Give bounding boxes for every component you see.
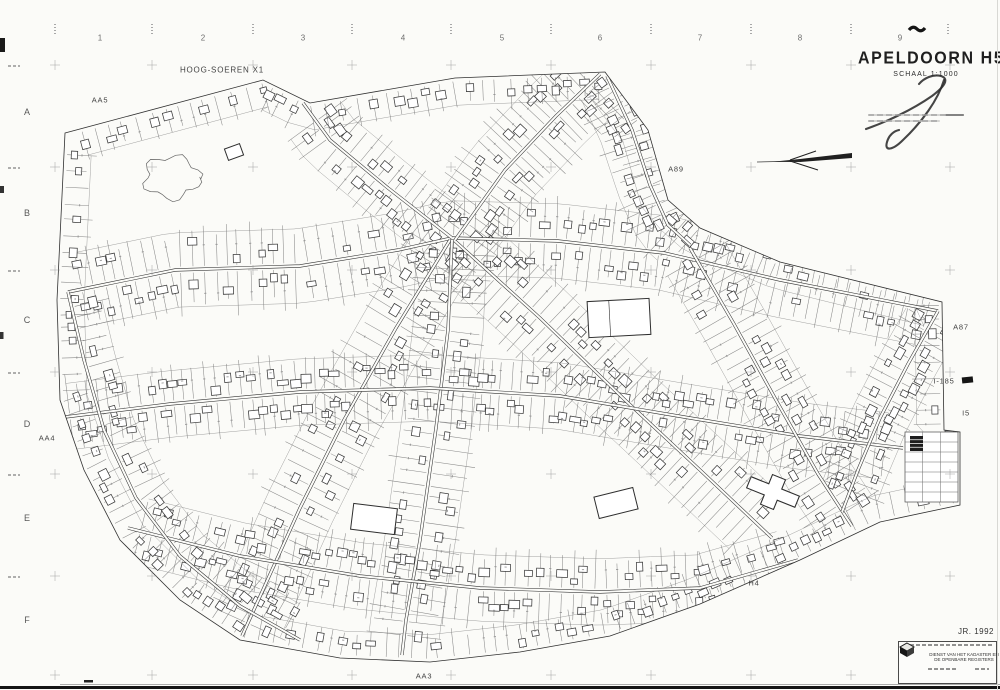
grid-column-label-1: 1 bbox=[98, 34, 102, 43]
grid-row-label-C: C bbox=[24, 315, 31, 325]
grid-row-label-A: A bbox=[24, 107, 30, 117]
stamp-org-line2: DE OPENBARE REGISTERS bbox=[929, 657, 998, 662]
grid-coordinate-tick-top-3 bbox=[351, 24, 353, 35]
grid-row-label-E: E bbox=[24, 513, 30, 523]
grid-coordinate-tick-left-3 bbox=[8, 372, 20, 374]
scan-speck bbox=[0, 186, 4, 193]
grid-column-label-5: 5 bbox=[500, 34, 504, 43]
scan-speck bbox=[84, 680, 93, 683]
ink-blob bbox=[962, 376, 974, 383]
grid-row-label-B: B bbox=[24, 208, 30, 218]
stamp-fineprint-top bbox=[904, 644, 992, 646]
grid-column-label-2: 2 bbox=[201, 34, 205, 43]
grid-column-label-8: 8 bbox=[798, 34, 802, 43]
handwritten-arrow bbox=[770, 153, 852, 162]
sheet-title: APELDOORN H5 bbox=[858, 49, 994, 68]
scan-edge-line bbox=[0, 686, 1000, 689]
section-label-h4: H4 bbox=[748, 579, 759, 588]
stamp-fineprint-left bbox=[928, 668, 958, 670]
section-label-aa4: AA4 bbox=[39, 434, 56, 443]
grid-column-label-3: 3 bbox=[301, 34, 305, 43]
section-label-i5: I5 bbox=[962, 409, 970, 418]
grid-row-label-D: D bbox=[24, 419, 31, 429]
grid-coordinate-tick-top-4 bbox=[450, 24, 452, 35]
grid-coordinate-tick-top-1 bbox=[151, 24, 153, 35]
grid-column-label-4: 4 bbox=[401, 34, 405, 43]
overlays bbox=[0, 27, 973, 682]
title-block: APELDOORN H5 SCHAAL 1:1000 bbox=[858, 50, 994, 78]
grid-coordinate-tick-left-4 bbox=[8, 474, 20, 476]
grid-coordinate-tick-left-5 bbox=[8, 576, 20, 578]
section-label-a89: A89 bbox=[668, 165, 684, 174]
grid-coordinate-tick-top-0 bbox=[54, 24, 56, 35]
grid-column-label-9: 9 bbox=[898, 34, 902, 43]
section-label-a87: A87 bbox=[953, 323, 969, 332]
grid-coordinate-tick-top-9 bbox=[947, 24, 949, 35]
grid-column-label-6: 6 bbox=[598, 34, 602, 43]
stamp-fineprint-right bbox=[975, 668, 989, 670]
handwritten-mark bbox=[909, 27, 925, 31]
grid-coordinate-tick-top-2 bbox=[252, 24, 254, 35]
section-label-i185: I-185 bbox=[933, 377, 954, 386]
sheet-scale-label: SCHAAL 1:1000 bbox=[858, 71, 994, 78]
grid-column-label-7: 7 bbox=[698, 34, 702, 43]
sheet-right-edge bbox=[997, 0, 998, 690]
kadaster-stamp-box: DIENST VAN HET KADASTER EN DE OPENBARE R… bbox=[898, 641, 997, 684]
grid-coordinate-tick-top-5 bbox=[550, 24, 552, 35]
grid-coordinate-tick-top-6 bbox=[650, 24, 652, 35]
scan-speck bbox=[0, 38, 5, 52]
cadastral-map-sheet: 123456789ABCDEFHOOG-SOEREN X1AA5A89A87I-… bbox=[0, 0, 1000, 690]
kadaster-cube-logo-icon bbox=[899, 642, 915, 658]
grid-coordinate-tick-top-7 bbox=[750, 24, 752, 35]
sheet-bottom-edge bbox=[60, 684, 1000, 685]
faded-annotation-lines bbox=[868, 114, 968, 126]
grid-row-label-F: F bbox=[24, 615, 30, 625]
year-label: JR. 1992 bbox=[938, 627, 994, 636]
grid-coordinate-tick-left-1 bbox=[8, 167, 20, 169]
area-label-hoog-soeren: HOOG-SOEREN X1 bbox=[180, 66, 264, 75]
cadastral-map-canvas bbox=[0, 0, 1000, 690]
grid-coordinate-tick-top-8 bbox=[850, 24, 852, 35]
grid-coordinate-tick-left-0 bbox=[8, 65, 20, 67]
scan-speck bbox=[0, 332, 4, 339]
stamp-text: DIENST VAN HET KADASTER EN DE OPENBARE R… bbox=[929, 652, 998, 662]
grid-coordinate-tick-left-2 bbox=[8, 270, 20, 272]
section-label-aa5: AA5 bbox=[92, 96, 109, 105]
section-label-aa3: AA3 bbox=[416, 672, 433, 681]
